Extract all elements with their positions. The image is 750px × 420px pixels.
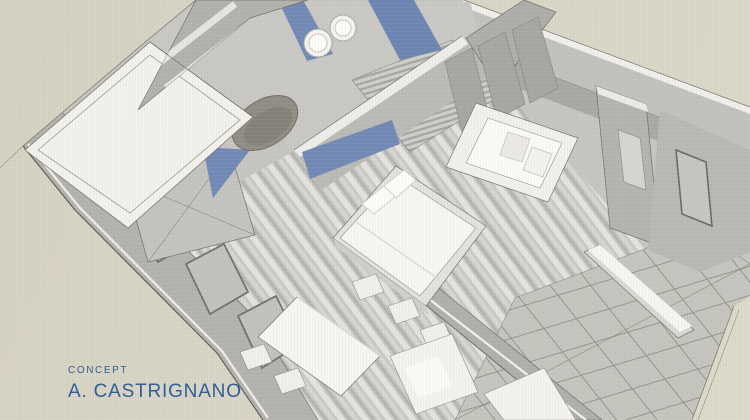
hob-burner [304, 29, 332, 57]
caption-label: CONCEPT [68, 364, 242, 378]
caption-author: A. CASTRIGNANO [68, 380, 242, 404]
interior-doorway-frame [676, 150, 712, 226]
concept-board: CONCEPT A. CASTRIGNANO [0, 0, 750, 420]
floorplan-render [0, 0, 750, 420]
caption: CONCEPT A. CASTRIGNANO [68, 364, 242, 404]
hob-burner [330, 15, 356, 41]
